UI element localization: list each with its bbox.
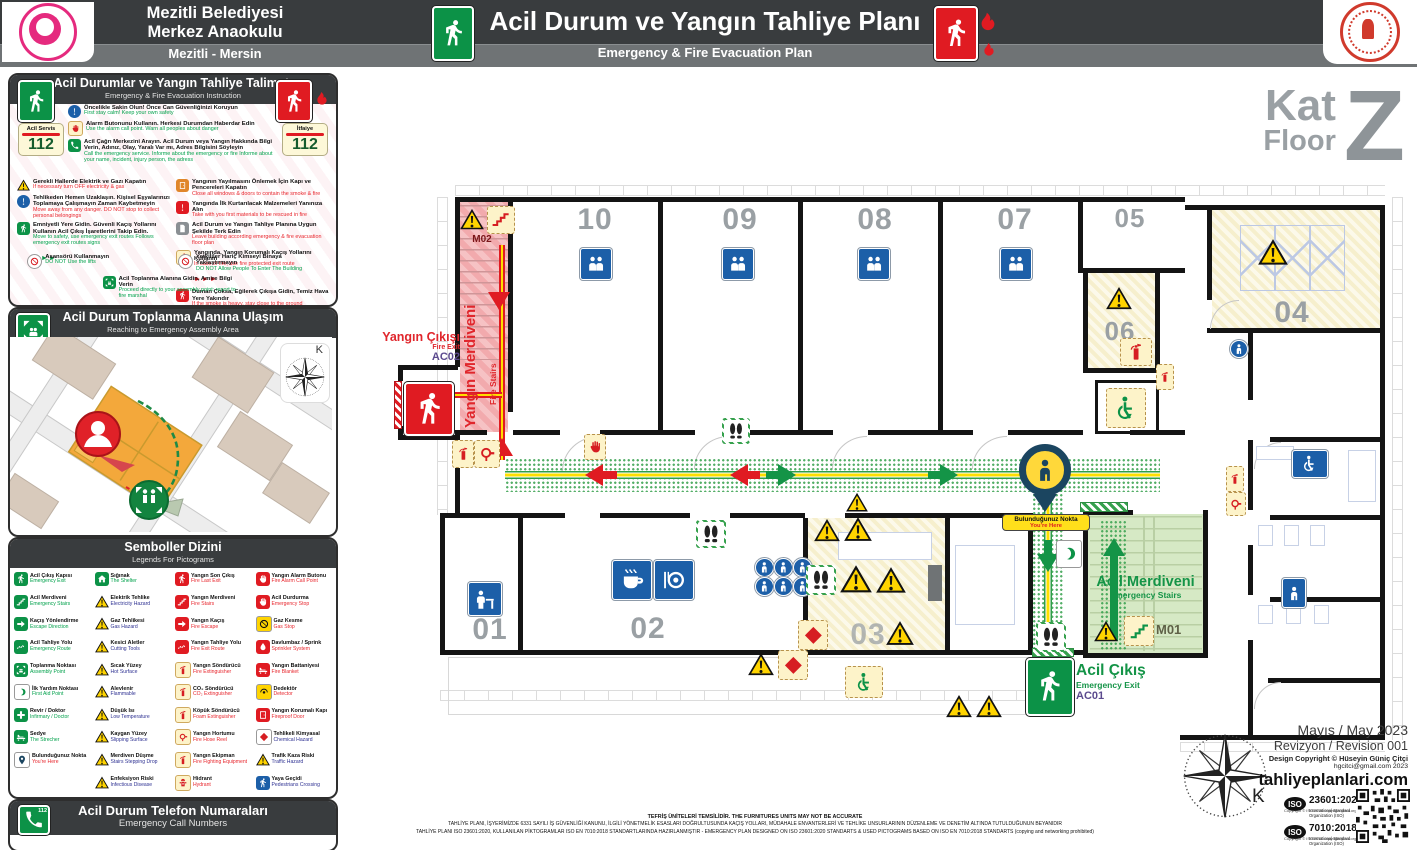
accessible-wc-icon xyxy=(1292,450,1328,478)
stairs-drop-warning-icon xyxy=(1094,620,1118,644)
iso-badge-23601: ISO 23601:2020 International Standard Or… xyxy=(1284,790,1362,818)
cafeteria-dining-icon xyxy=(654,560,694,600)
iso-badge-7010: ISO 7010:2018 International Standard Org… xyxy=(1284,818,1357,846)
chemical-hazard-icon xyxy=(778,650,808,680)
classroom-icon xyxy=(1000,248,1032,280)
cafeteria-coffee-icon xyxy=(612,560,652,600)
mandatory-sign-icon xyxy=(1230,340,1248,358)
fire-exit-door-mark xyxy=(394,381,402,429)
plan-revision: Revizyon / Revision 001 xyxy=(1140,739,1414,753)
iso-copyright: Copyright © ISO 2011 copyright@iso.org xyxy=(1284,836,1356,841)
disclaimer-line2: TAHLİYE PLANI, İŞYERİMİZDE 6331 SAYILI İ… xyxy=(345,821,1165,829)
fire-exit-label-tr: Yangın Çıkışı xyxy=(360,330,460,344)
slipping-warning-icon xyxy=(886,620,914,648)
plan-date: Mayıs / May 2023 xyxy=(1140,722,1414,738)
escape-arrow-right xyxy=(778,464,796,486)
fire-exit-sign-icon xyxy=(404,382,454,436)
warning-icon xyxy=(846,492,868,514)
electricity-warning-icon xyxy=(1106,286,1132,312)
you-are-here-en: You're Here xyxy=(1003,523,1089,529)
you-are-here-pin xyxy=(1019,444,1071,496)
accessible-route-icon xyxy=(845,666,883,698)
fire-extinguisher-icon xyxy=(1156,364,1174,390)
fire-arrow-left xyxy=(585,464,603,486)
classroom-icon xyxy=(722,248,754,280)
emergency-stairs-labels: Acil Merdiveni Emergency Stairs xyxy=(1088,574,1203,600)
qr-code xyxy=(1356,789,1410,843)
footprints-icon xyxy=(1036,622,1066,652)
fire-stairs-label-tr: Yangın Merdiveni xyxy=(462,305,479,428)
warning-icon xyxy=(844,516,872,544)
hot-surface-warning-icon xyxy=(876,566,906,596)
room-label-09: 09 xyxy=(695,203,785,237)
iso-copyright: Copyright © ISO 2020 copyright@iso.org xyxy=(1284,808,1357,813)
classroom-icon xyxy=(580,248,612,280)
room-label-07: 07 xyxy=(970,203,1060,237)
fire-arrow-left xyxy=(730,464,748,486)
office-icon xyxy=(468,582,502,616)
kitchen-counter xyxy=(928,565,942,601)
fire-exit-label-en: Fire Exit xyxy=(360,344,460,351)
fire-route-vertical xyxy=(499,245,505,460)
mandatory-sign-icon xyxy=(774,558,793,577)
footprints-icon xyxy=(806,565,836,595)
warning-icon xyxy=(976,694,1002,720)
stairs-drop-warning-icon xyxy=(460,208,484,232)
evacuation-plan-poster: Mezitli Belediyesi Merkez Anaokulu Mezit… xyxy=(0,0,1417,850)
general-warning-icon xyxy=(1258,238,1288,268)
footprints-icon xyxy=(722,418,750,444)
pin-tail xyxy=(1033,494,1057,512)
mandatory-sign-icon xyxy=(755,577,774,596)
fire-exit-labels: Yangın Çıkışı Fire Exit AC02 xyxy=(360,330,460,363)
mandatory-sign-icon xyxy=(774,577,793,596)
designer-email: hgcitci@gmail.com 2023 xyxy=(1140,763,1414,770)
optical-radiation-warning-icon xyxy=(814,518,840,544)
room-label-10: 10 xyxy=(550,203,640,237)
fire-extinguisher-icon xyxy=(452,440,474,468)
disclaimer-line3: TAHLİYE PLANI ISO 23601:2020, KULLANILAN… xyxy=(345,829,1165,837)
room-label-08: 08 xyxy=(830,203,920,237)
flammable-warning-icon xyxy=(748,652,774,678)
emergency-exit-sign-icon xyxy=(1026,658,1074,716)
fire-exit-code: AC02 xyxy=(360,351,460,363)
emergency-stairs-label-en: Emergency Stairs xyxy=(1088,590,1203,600)
emergency-exit-label-tr: Acil Çıkış xyxy=(1076,662,1196,680)
room-label-01: 01 xyxy=(450,613,530,647)
emergency-exit-label-en: Emergency Exit xyxy=(1076,680,1196,690)
you-are-here-badge: Bulunduğunuz Nokta You're Here xyxy=(1002,514,1090,531)
fire-hose-icon xyxy=(474,440,500,468)
fire-stairs-sign-icon xyxy=(487,206,515,234)
wc-icon xyxy=(1282,578,1306,608)
fire-extinguisher-icon xyxy=(1226,466,1244,492)
chemical-hazard-icon xyxy=(798,620,828,650)
room-label-02: 02 xyxy=(608,612,688,646)
emergency-stairs-label-tr: Acil Merdiveni xyxy=(1088,574,1203,590)
footprints-icon xyxy=(696,520,726,548)
emergency-exit-code: AC01 xyxy=(1076,690,1196,702)
fire-alarm-button-icon xyxy=(584,434,606,460)
wheelchair-lift-icon xyxy=(1106,388,1146,428)
first-aid-point-icon xyxy=(1056,540,1082,568)
stairs-arrow-up xyxy=(1103,538,1125,556)
website: tahliyeplanlari.com xyxy=(1140,771,1414,790)
mandatory-sign-icon xyxy=(755,558,774,577)
fire-stairs-label-en: Fire Stairs xyxy=(488,363,498,405)
classroom-icon xyxy=(858,248,890,280)
storage-shelves xyxy=(1240,225,1345,291)
emergency-stairs-sign-icon xyxy=(1124,616,1154,646)
emergency-stairs-code: M01 xyxy=(1156,622,1181,637)
disclaimer: TEFRİŞ ÜNİTELERİ TEMSİLİDİR. THE FURNITU… xyxy=(345,813,1165,837)
room-label-04: 04 xyxy=(1252,296,1332,330)
fire-hose-icon xyxy=(1226,492,1246,516)
emergency-exit-labels: Acil Çıkış Emergency Exit AC01 xyxy=(1076,662,1196,702)
room-label-05: 05 xyxy=(1095,203,1165,234)
warning-icon xyxy=(946,694,972,720)
fire-equipment-icon xyxy=(1120,338,1152,366)
stairs-entry-mark xyxy=(1080,502,1128,512)
flammable-warning-icon xyxy=(840,564,872,596)
fire-arrow-down xyxy=(488,292,510,310)
design-copyright: Design Copyright © Hüseyin Güniç Çitçi xyxy=(1140,754,1414,763)
you-are-here-tr: Bulunduğunuz Nokta xyxy=(1003,516,1089,523)
fire-stairs-code: M02 xyxy=(458,234,506,245)
escape-arrow-right xyxy=(940,464,958,486)
